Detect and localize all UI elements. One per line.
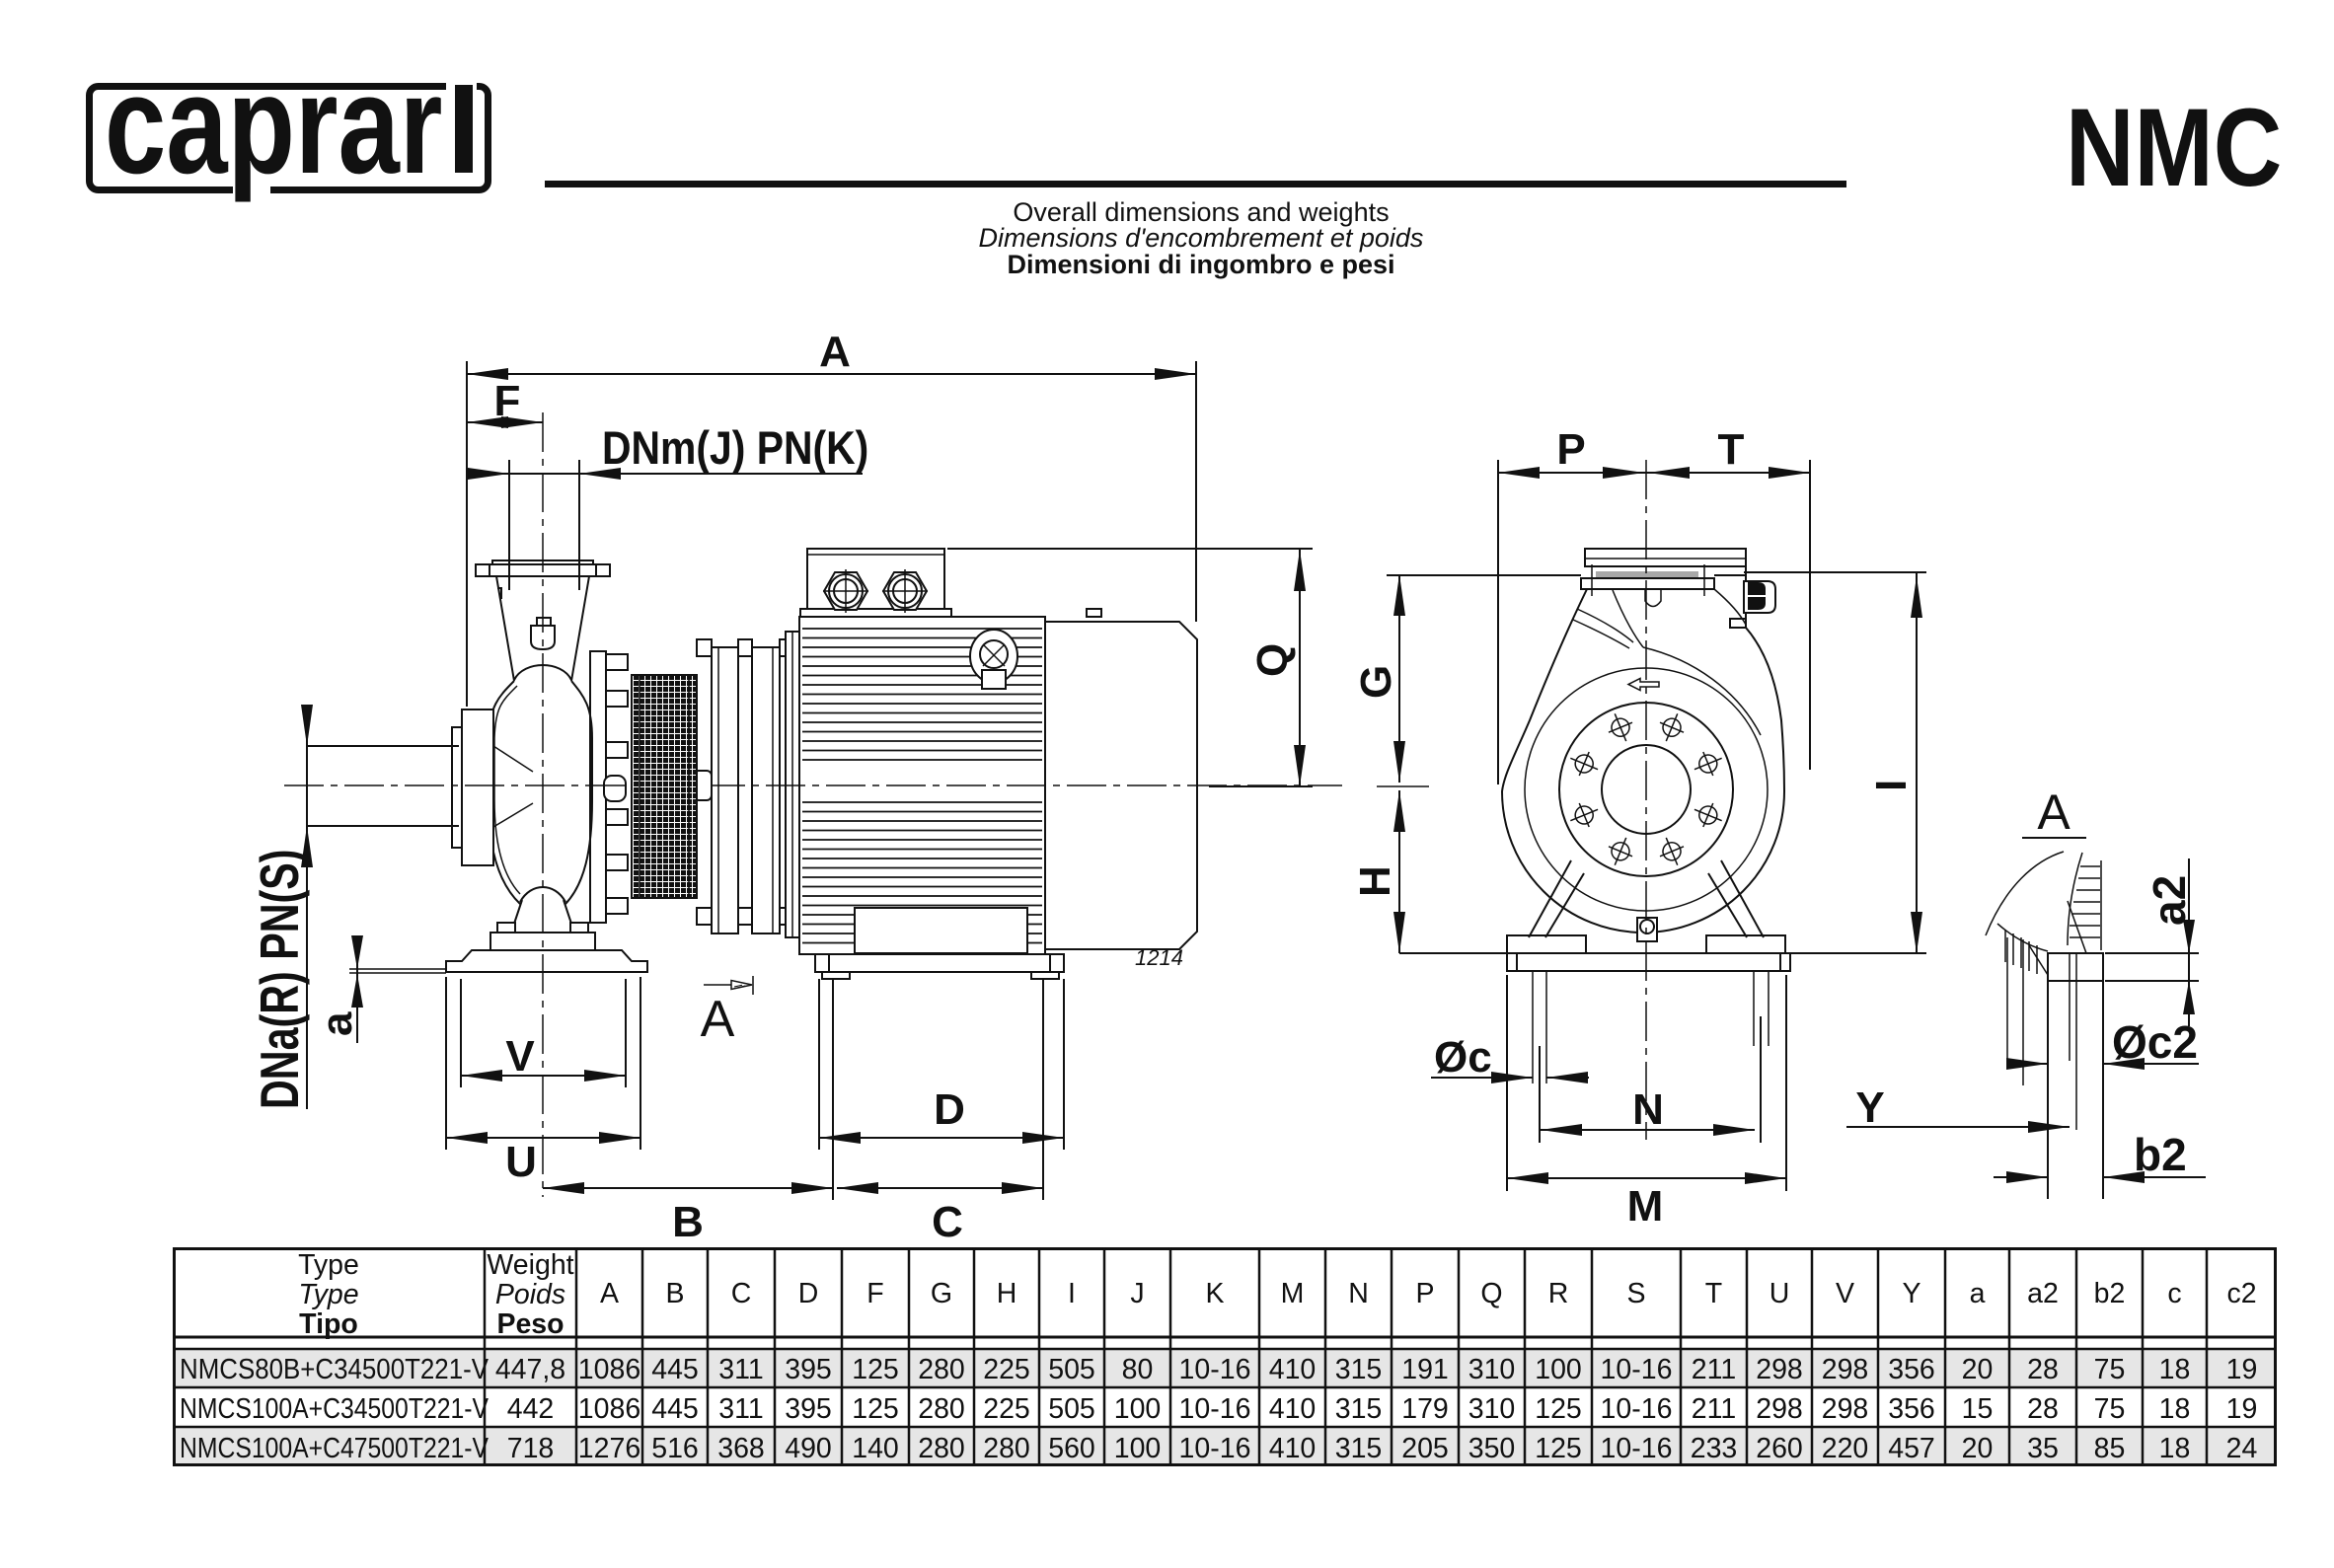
svg-text:Q: Q xyxy=(1480,1278,1502,1309)
svg-text:280: 280 xyxy=(918,1393,965,1425)
svg-text:D: D xyxy=(934,1085,965,1134)
svg-text:410: 410 xyxy=(1269,1393,1317,1425)
svg-text:10-16: 10-16 xyxy=(1179,1393,1251,1425)
svg-text:298: 298 xyxy=(1756,1393,1803,1425)
svg-text:c2: c2 xyxy=(2226,1278,2256,1309)
svg-text:191: 191 xyxy=(1401,1354,1449,1385)
svg-text:NMCS100A+C47500T221-V: NMCS100A+C47500T221-V xyxy=(180,1433,489,1464)
svg-text:18: 18 xyxy=(2159,1393,2191,1425)
svg-text:35: 35 xyxy=(2027,1433,2059,1464)
svg-text:J: J xyxy=(1130,1278,1144,1309)
svg-text:A: A xyxy=(701,991,735,1048)
svg-text:M: M xyxy=(1281,1278,1305,1309)
svg-text:Øc2: Øc2 xyxy=(2112,1016,2198,1068)
svg-text:395: 395 xyxy=(785,1354,832,1385)
svg-text:caprar: caprar xyxy=(105,46,442,203)
svg-text:U: U xyxy=(1769,1278,1790,1309)
svg-text:H: H xyxy=(1351,865,1399,897)
svg-text:220: 220 xyxy=(1822,1433,1869,1464)
svg-text:211: 211 xyxy=(1692,1393,1736,1425)
svg-text:447,8: 447,8 xyxy=(495,1354,565,1385)
svg-text:85: 85 xyxy=(2094,1433,2126,1464)
svg-text:18: 18 xyxy=(2159,1354,2191,1385)
svg-text:a2: a2 xyxy=(2144,875,2195,926)
svg-text:N: N xyxy=(1632,1085,1664,1134)
svg-text:T: T xyxy=(1718,425,1745,474)
svg-text:28: 28 xyxy=(2027,1354,2059,1385)
svg-text:10-16: 10-16 xyxy=(1601,1393,1673,1425)
svg-text:225: 225 xyxy=(983,1393,1030,1425)
svg-text:356: 356 xyxy=(1888,1393,1935,1425)
svg-text:F: F xyxy=(866,1278,883,1309)
svg-text:I: I xyxy=(1068,1278,1076,1309)
svg-text:N: N xyxy=(1348,1278,1369,1309)
svg-text:Dimensions d'encombrement et p: Dimensions d'encombrement et poids xyxy=(979,223,1424,253)
svg-text:Type: Type xyxy=(298,1249,359,1281)
svg-text:NMCS80B+C34500T221-V: NMCS80B+C34500T221-V xyxy=(180,1354,489,1385)
svg-text:75: 75 xyxy=(2094,1354,2126,1385)
svg-text:V: V xyxy=(505,1032,535,1081)
svg-text:310: 310 xyxy=(1468,1393,1516,1425)
svg-text:Poids: Poids xyxy=(495,1279,565,1310)
svg-text:10-16: 10-16 xyxy=(1179,1433,1251,1464)
svg-text:Type: Type xyxy=(298,1279,358,1310)
svg-text:75: 75 xyxy=(2094,1393,2126,1425)
svg-text:B: B xyxy=(672,1198,704,1246)
svg-text:C: C xyxy=(932,1198,963,1246)
svg-text:311: 311 xyxy=(718,1354,763,1385)
svg-text:V: V xyxy=(1836,1278,1854,1309)
svg-text:DNa(R) PN(S): DNa(R) PN(S) xyxy=(250,849,310,1109)
svg-text:490: 490 xyxy=(785,1433,832,1464)
svg-text:125: 125 xyxy=(852,1354,899,1385)
svg-text:516: 516 xyxy=(651,1433,699,1464)
svg-text:233: 233 xyxy=(1691,1433,1738,1464)
svg-text:24: 24 xyxy=(2226,1433,2258,1464)
svg-text:1276: 1276 xyxy=(578,1433,640,1464)
svg-text:S: S xyxy=(1626,1278,1645,1309)
svg-text:DNm(J) PN(K): DNm(J) PN(K) xyxy=(602,422,868,474)
svg-text:a2: a2 xyxy=(2027,1278,2059,1309)
svg-text:280: 280 xyxy=(983,1433,1030,1464)
svg-text:A: A xyxy=(2037,784,2070,840)
svg-text:10-16: 10-16 xyxy=(1601,1433,1673,1464)
svg-text:a: a xyxy=(313,1011,361,1036)
svg-text:b2: b2 xyxy=(2094,1278,2126,1309)
svg-text:10-16: 10-16 xyxy=(1179,1354,1251,1385)
svg-text:Øc: Øc xyxy=(1434,1033,1492,1082)
svg-text:10-16: 10-16 xyxy=(1601,1354,1673,1385)
svg-text:211: 211 xyxy=(1692,1354,1736,1385)
svg-text:205: 205 xyxy=(1401,1433,1449,1464)
svg-text:311: 311 xyxy=(718,1393,763,1425)
svg-text:Peso: Peso xyxy=(496,1308,564,1340)
svg-text:1086: 1086 xyxy=(578,1354,640,1385)
svg-text:M: M xyxy=(1627,1182,1664,1231)
svg-text:457: 457 xyxy=(1888,1433,1935,1464)
svg-text:P: P xyxy=(1556,425,1585,474)
svg-text:125: 125 xyxy=(1535,1433,1582,1464)
svg-text:315: 315 xyxy=(1335,1393,1383,1425)
svg-text:A: A xyxy=(819,328,851,376)
svg-text:445: 445 xyxy=(651,1354,699,1385)
svg-text:20: 20 xyxy=(1962,1354,1994,1385)
svg-text:298: 298 xyxy=(1756,1354,1803,1385)
svg-text:100: 100 xyxy=(1535,1354,1582,1385)
svg-text:19: 19 xyxy=(2226,1354,2258,1385)
svg-text:445: 445 xyxy=(651,1393,699,1425)
svg-text:28: 28 xyxy=(2027,1393,2059,1425)
svg-text:225: 225 xyxy=(983,1354,1030,1385)
svg-text:125: 125 xyxy=(1535,1393,1582,1425)
svg-text:Q: Q xyxy=(1248,643,1297,677)
svg-text:H: H xyxy=(997,1278,1017,1309)
svg-text:356: 356 xyxy=(1888,1354,1935,1385)
svg-text:80: 80 xyxy=(1122,1354,1154,1385)
svg-text:280: 280 xyxy=(918,1354,965,1385)
svg-text:140: 140 xyxy=(852,1433,899,1464)
svg-text:NMCS100A+C34500T221-V: NMCS100A+C34500T221-V xyxy=(180,1393,489,1425)
svg-text:298: 298 xyxy=(1822,1354,1869,1385)
svg-text:350: 350 xyxy=(1468,1433,1516,1464)
svg-text:D: D xyxy=(798,1278,819,1309)
svg-text:560: 560 xyxy=(1048,1433,1095,1464)
svg-text:20: 20 xyxy=(1962,1433,1994,1464)
svg-text:718: 718 xyxy=(507,1433,555,1464)
svg-text:368: 368 xyxy=(717,1433,765,1464)
svg-text:Y: Y xyxy=(1855,1083,1884,1132)
svg-text:179: 179 xyxy=(1401,1393,1449,1425)
svg-text:c: c xyxy=(2167,1278,2181,1309)
svg-text:310: 310 xyxy=(1468,1354,1516,1385)
svg-text:15: 15 xyxy=(1962,1393,1994,1425)
svg-text:G: G xyxy=(1352,665,1400,699)
svg-text:G: G xyxy=(931,1278,952,1309)
svg-text:I: I xyxy=(1867,780,1916,791)
svg-text:NMC: NMC xyxy=(2066,86,2282,209)
svg-text:100: 100 xyxy=(1114,1433,1162,1464)
svg-text:A: A xyxy=(600,1278,619,1309)
svg-text:K: K xyxy=(1205,1278,1224,1309)
svg-text:F: F xyxy=(494,377,521,425)
svg-text:Tipo: Tipo xyxy=(299,1308,358,1340)
svg-text:315: 315 xyxy=(1335,1433,1383,1464)
svg-text:315: 315 xyxy=(1335,1354,1383,1385)
svg-text:260: 260 xyxy=(1756,1433,1803,1464)
svg-text:B: B xyxy=(665,1278,684,1309)
svg-text:410: 410 xyxy=(1269,1354,1317,1385)
svg-text:P: P xyxy=(1415,1278,1434,1309)
svg-text:Weight: Weight xyxy=(487,1249,573,1281)
svg-text:19: 19 xyxy=(2226,1393,2258,1425)
svg-text:125: 125 xyxy=(852,1393,899,1425)
svg-text:U: U xyxy=(505,1138,537,1186)
svg-text:395: 395 xyxy=(785,1393,832,1425)
svg-text:Dimensioni di ingombro e pesi: Dimensioni di ingombro e pesi xyxy=(1007,250,1394,279)
svg-text:1086: 1086 xyxy=(578,1393,640,1425)
svg-text:Y: Y xyxy=(1902,1278,1920,1309)
svg-text:a: a xyxy=(1970,1278,1986,1309)
svg-text:298: 298 xyxy=(1822,1393,1869,1425)
svg-text:R: R xyxy=(1548,1278,1569,1309)
svg-text:280: 280 xyxy=(918,1433,965,1464)
svg-text:T: T xyxy=(1705,1278,1722,1309)
svg-text:b2: b2 xyxy=(2134,1129,2187,1180)
svg-text:1214: 1214 xyxy=(1135,945,1183,970)
svg-text:410: 410 xyxy=(1269,1433,1317,1464)
svg-text:505: 505 xyxy=(1048,1354,1095,1385)
svg-text:442: 442 xyxy=(507,1393,555,1425)
svg-text:18: 18 xyxy=(2159,1433,2191,1464)
svg-text:505: 505 xyxy=(1048,1393,1095,1425)
svg-text:100: 100 xyxy=(1114,1393,1162,1425)
svg-text:C: C xyxy=(731,1278,752,1309)
